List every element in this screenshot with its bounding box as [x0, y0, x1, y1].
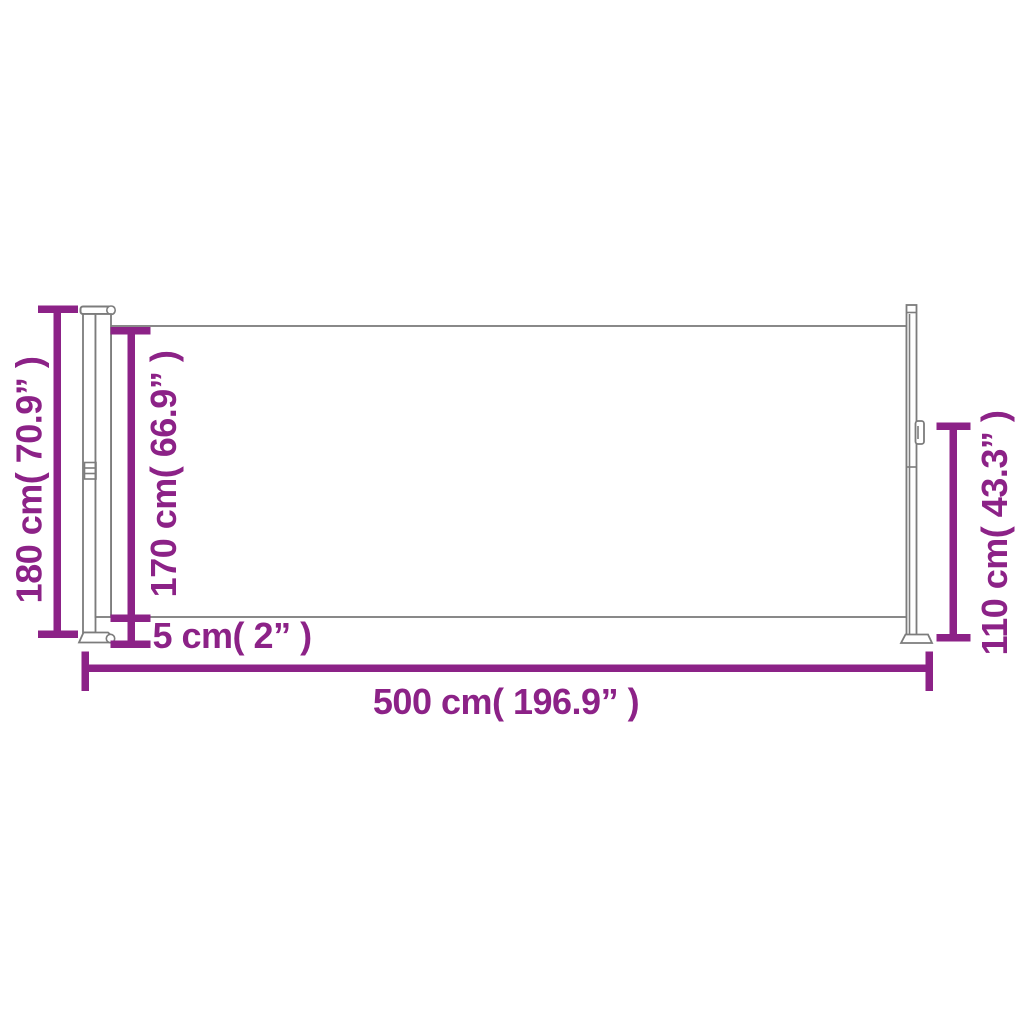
dim-line-post-height [950, 423, 958, 642]
label-total-width: 500 cm( 196.9” ) [373, 681, 639, 722]
dim-cap-total-height-top [38, 306, 78, 314]
label-bottom-gap: 5 cm( 2” ) [153, 615, 312, 656]
dim-cap-post-height-bottom [937, 634, 971, 642]
diagram-svg: 180 cm( 70.9” ) 170 cm( 66.9” ) 5 cm( 2”… [0, 0, 1024, 1024]
dim-cap-bottom-gap [111, 641, 151, 649]
dim-cap-total-width-right [926, 652, 934, 692]
dim-cap-fabric-height-top [111, 327, 151, 335]
dimension-total-width: 500 cm( 196.9” ) [82, 652, 934, 723]
label-post-height: 110 cm( 43.3” ) [974, 411, 1015, 656]
dim-cap-post-height-top [937, 423, 971, 431]
right-post-pole [907, 305, 917, 635]
label-fabric-height: 170 cm( 66.9” ) [143, 351, 184, 598]
dimension-total-height: 180 cm( 70.9” ) [9, 306, 79, 639]
dim-cap-total-width-left [82, 652, 90, 692]
awning-fabric-panel [111, 326, 907, 617]
dimension-post-height: 110 cm( 43.3” ) [937, 411, 1016, 656]
dim-line-fabric-height [128, 327, 136, 648]
dim-cap-fabric-height-bottom [111, 615, 151, 623]
right-post-pull-handle [916, 421, 925, 444]
right-post [901, 305, 932, 643]
dim-line-total-width [86, 665, 930, 673]
left-post-roller-cassette [96, 314, 112, 617]
left-post [79, 306, 115, 643]
dim-line-total-height [54, 306, 62, 639]
dim-cap-total-height-bottom [38, 631, 78, 639]
label-total-height: 180 cm( 70.9” ) [9, 357, 50, 604]
dimension-diagram: 180 cm( 70.9” ) 170 cm( 66.9” ) 5 cm( 2”… [0, 0, 1024, 1024]
right-post-foot [901, 635, 932, 644]
